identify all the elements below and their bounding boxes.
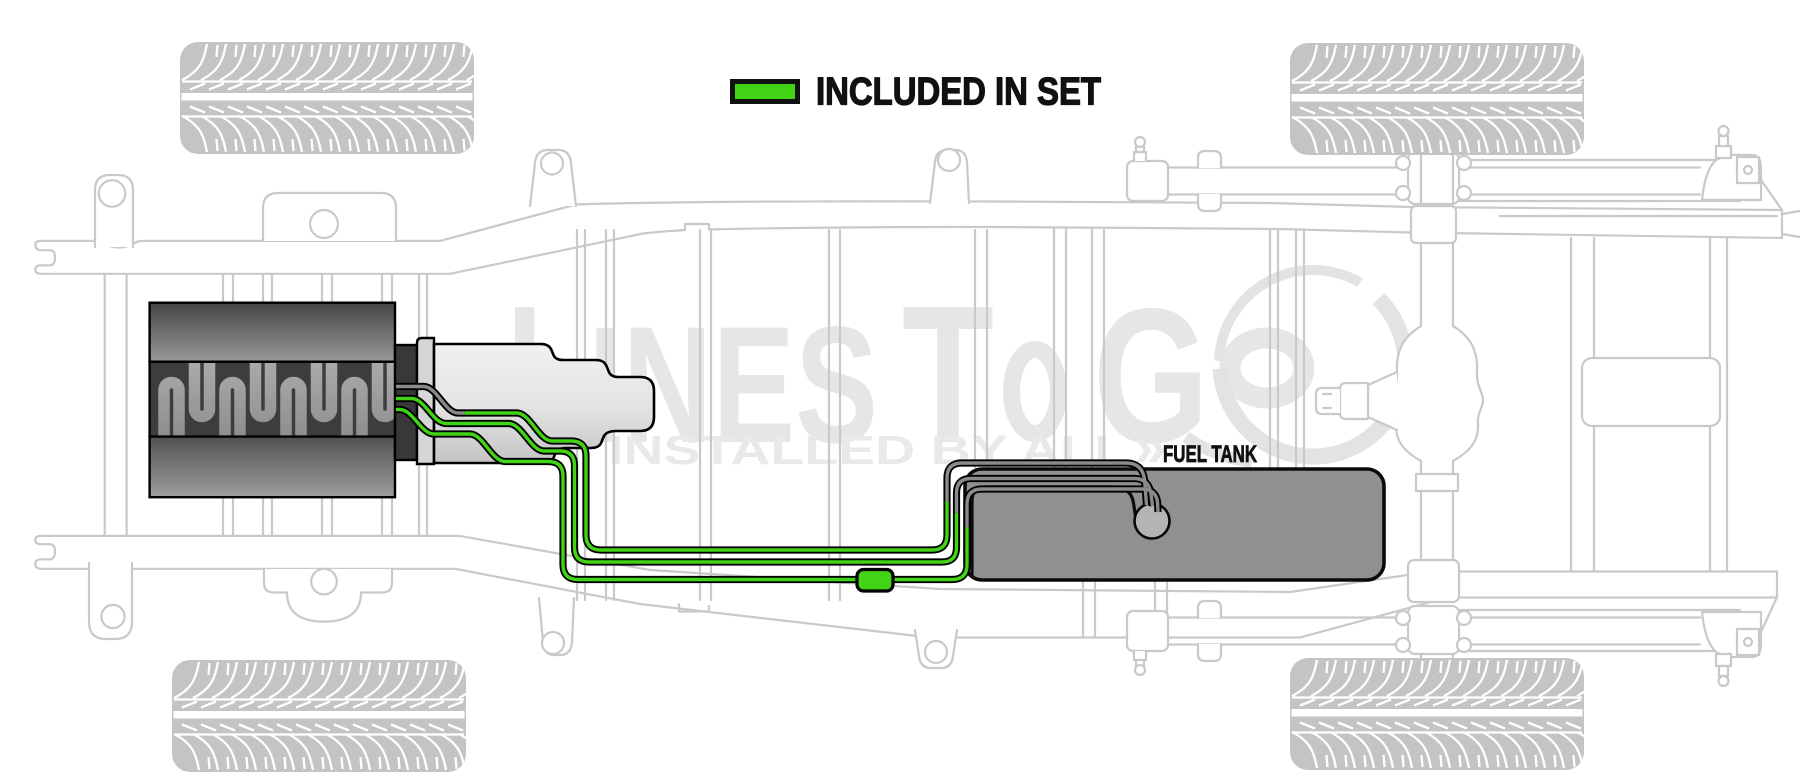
svg-text:FUEL TANK: FUEL TANK [1163,441,1257,468]
svg-text:INCLUDED IN SET: INCLUDED IN SET [816,71,1101,114]
